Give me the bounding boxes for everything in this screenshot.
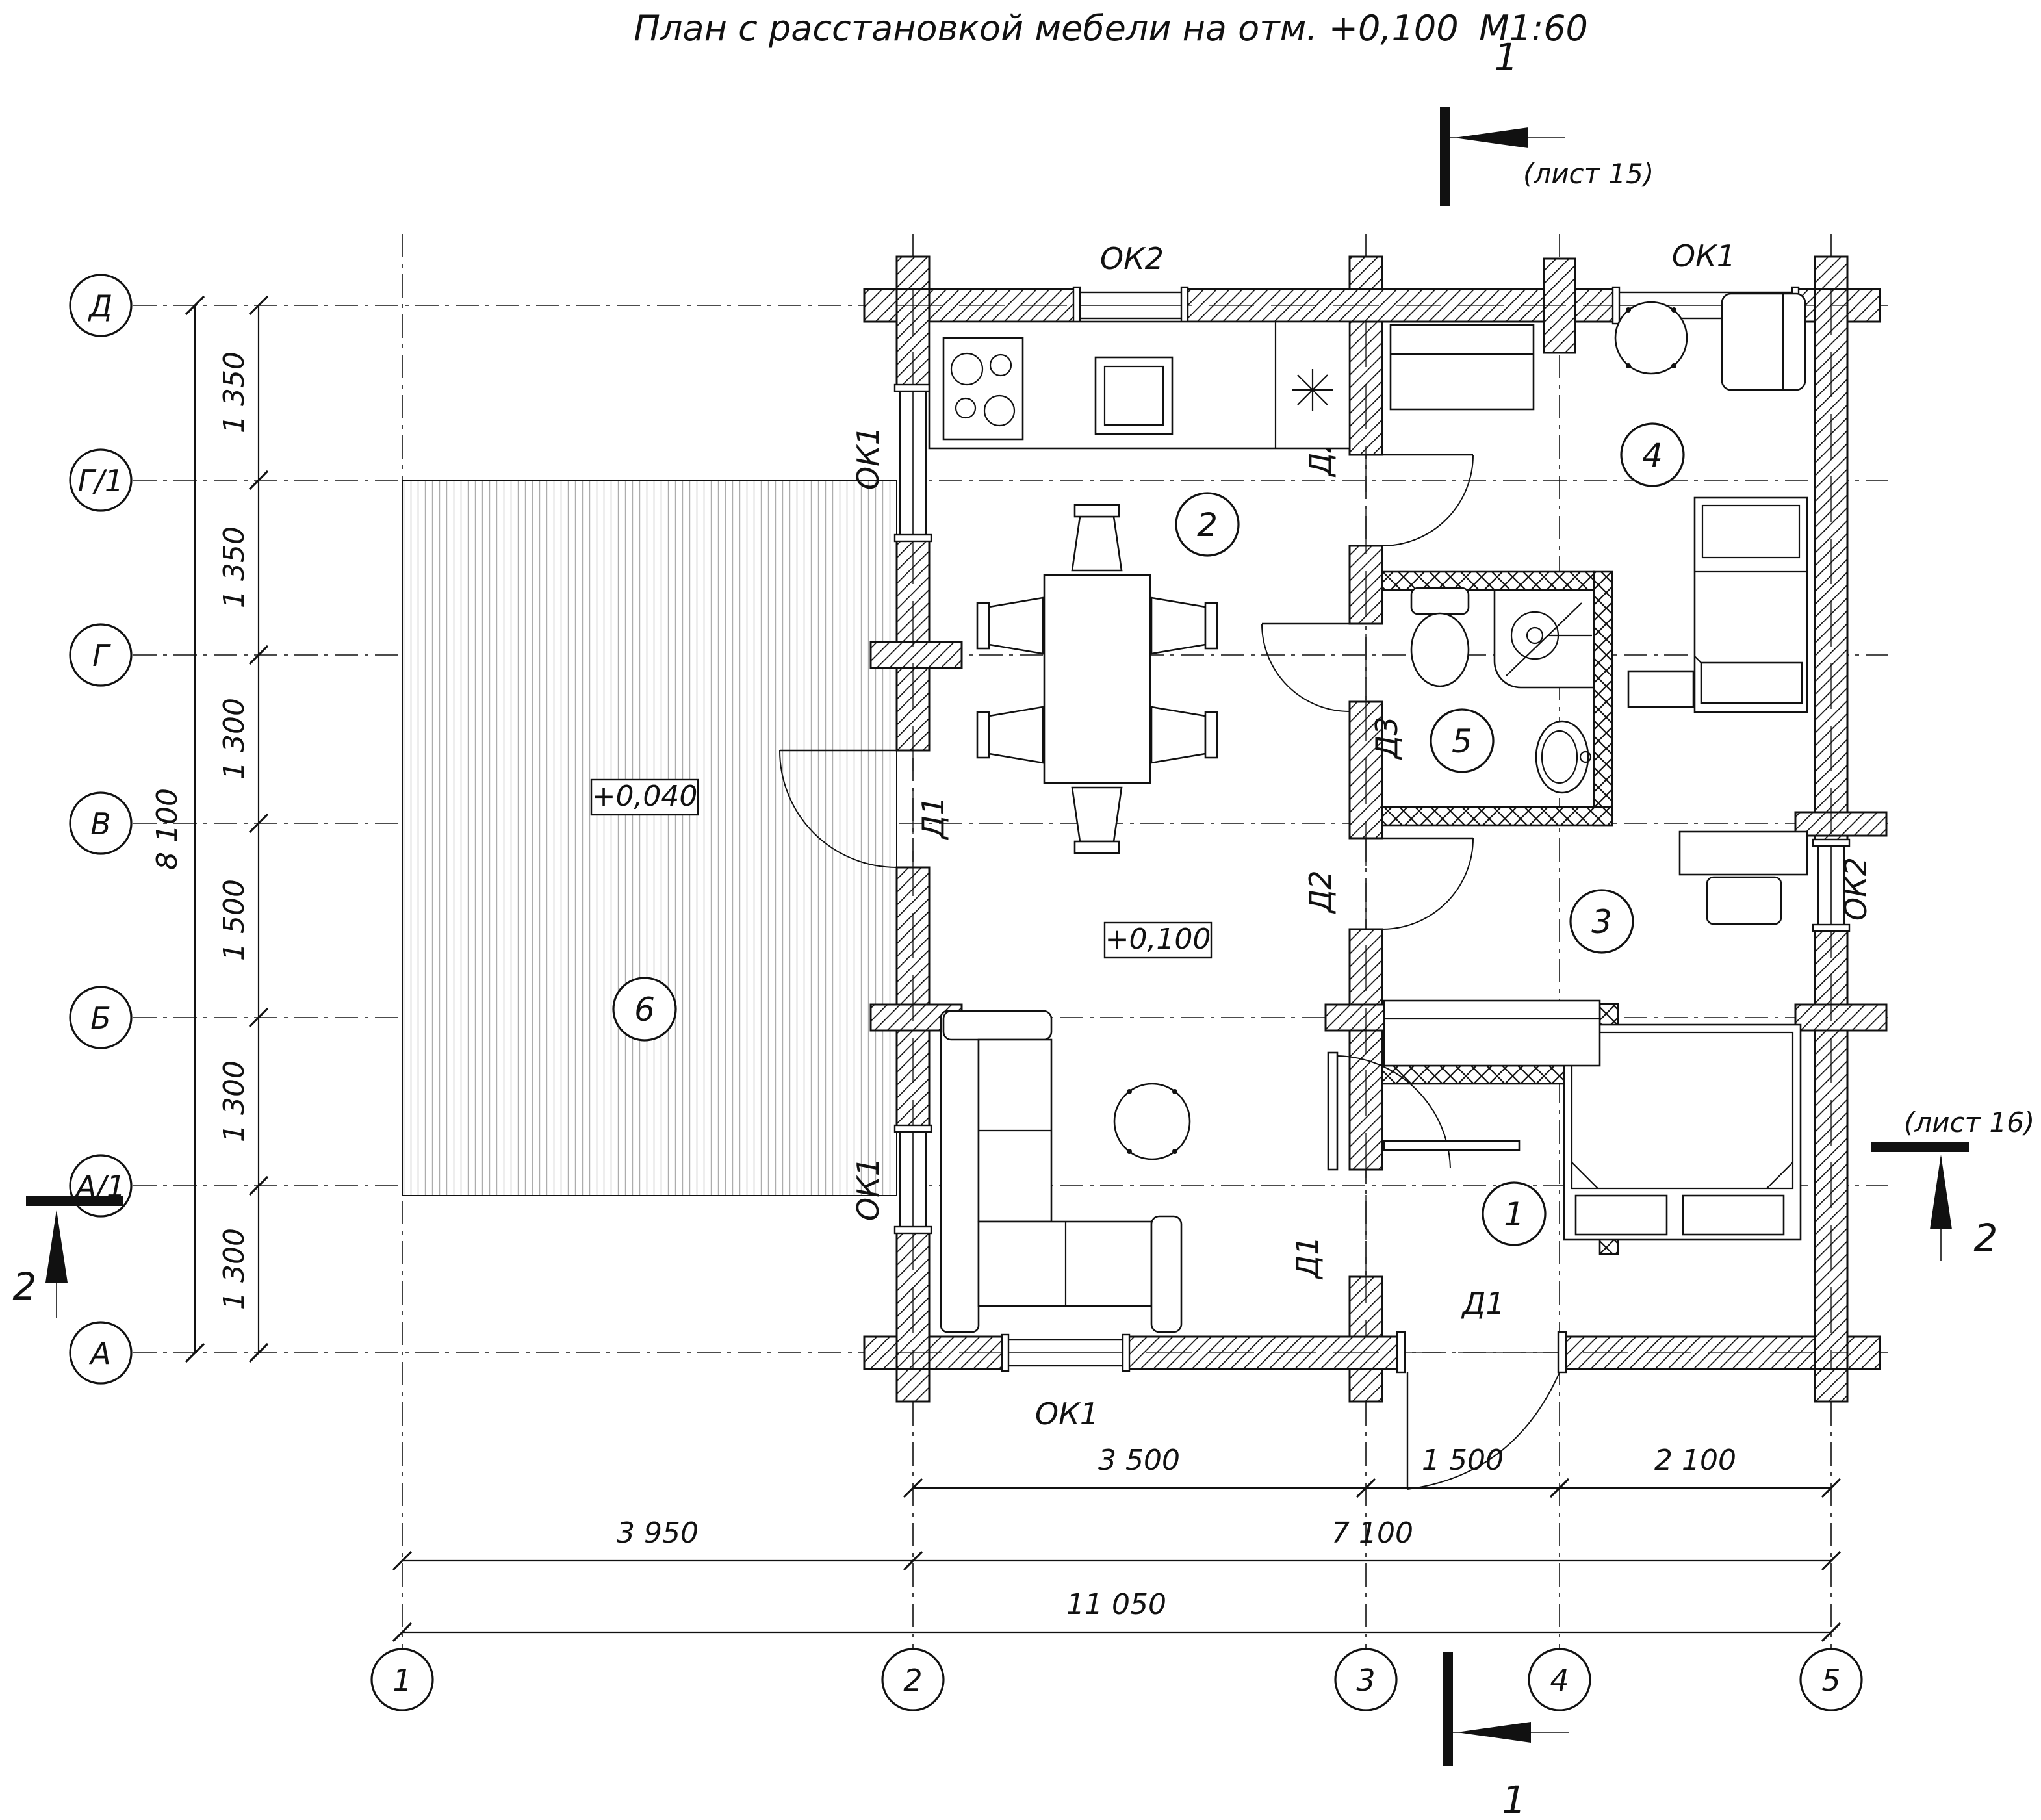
window-label: ОК2 <box>1100 241 1164 276</box>
dim-left-total: 8 100 <box>151 788 184 870</box>
title-block: План с расстановкой мебели на отм. +0,10… <box>634 8 1588 49</box>
side-table <box>1114 1084 1190 1159</box>
axis-bubbles-rows: Д Г/1 Г В Б А/1 А <box>70 275 131 1383</box>
dim-left-4: 1 300 <box>218 1060 251 1142</box>
section-marker-top: 1 (лист 15) <box>1440 35 1654 206</box>
terrace: +0,040 <box>402 480 897 1196</box>
section-number: 1 <box>1502 1778 1526 1820</box>
round-table <box>1615 302 1687 374</box>
room-number-6: 6 <box>634 991 655 1029</box>
dim-b2-0: 3 950 <box>617 1517 699 1550</box>
floor-plan-svg: План с расстановкой мебели на отм. +0,10… <box>0 0 2041 1820</box>
axis-row-label: А <box>88 1336 110 1371</box>
door-label: Д1 <box>916 796 951 840</box>
window-ok2-right: ОК2 <box>1813 840 1873 931</box>
hall-closet <box>1391 325 1534 409</box>
wardrobe <box>1384 1001 1600 1066</box>
door-label: Д1 <box>1290 1236 1325 1279</box>
sheet-ref: (лист 15) <box>1523 158 1654 190</box>
section-number: 2 <box>13 1264 37 1309</box>
axis-row-label: Г/1 <box>78 463 123 498</box>
sofa-armrest-top <box>943 1011 1051 1040</box>
axis-col-label: 5 <box>1821 1663 1840 1698</box>
room-number-1: 1 <box>1504 1196 1524 1233</box>
section-number: 2 <box>1974 1216 1998 1260</box>
window-label: ОК2 <box>1838 857 1873 921</box>
dim-b1-0: 3 500 <box>1098 1444 1180 1477</box>
dim-bottom-total: 11 050 <box>1066 1588 1166 1621</box>
axis-grid: Д Г/1 Г В Б А/1 А 1 2 3 4 5 <box>70 234 1888 1710</box>
section-marker-right: (лист 16) 2 <box>1871 1107 2035 1261</box>
dim-b1-2: 2 100 <box>1654 1444 1736 1477</box>
window-label: ОК1 <box>1672 238 1736 274</box>
dim-left-0: 1 350 <box>218 352 251 433</box>
dim-left-1: 1 350 <box>218 526 251 608</box>
door-d2-lower: Д2 <box>1303 838 1473 929</box>
pillow <box>1576 1196 1667 1235</box>
hall-shelf <box>1384 1141 1519 1150</box>
toilet-tank <box>1411 588 1469 614</box>
axis-col-label: 3 <box>1356 1663 1375 1698</box>
sheet-ref: (лист 16) <box>1904 1107 2035 1138</box>
door-label: Д3 <box>1369 716 1404 760</box>
kitchen-sink <box>1096 357 1172 434</box>
stove <box>943 338 1023 439</box>
dim-b1-1: 1 500 <box>1422 1444 1504 1477</box>
page-title: План с расстановкой мебели на отм. +0,10… <box>634 8 1458 49</box>
room-number-3: 3 <box>1591 903 1612 941</box>
sofa-back <box>941 1011 979 1332</box>
window-ok1-bottom: ОК1 <box>1002 1335 1129 1431</box>
pillow <box>1683 1196 1784 1235</box>
room-number-5: 5 <box>1452 723 1472 760</box>
floor-plan-page: План с расстановкой мебели на отм. +0,10… <box>0 0 2041 1820</box>
dining-table <box>1044 575 1150 783</box>
dim-left-5: 1 300 <box>218 1228 251 1310</box>
axis-bubbles-cols: 1 2 3 4 5 <box>372 1649 1862 1710</box>
dim-ticks-left <box>186 296 268 1362</box>
furniture-kitchen <box>929 322 1350 448</box>
toilet-bowl <box>1411 613 1469 686</box>
axis-col-label: 2 <box>903 1663 922 1698</box>
desk-chair <box>1707 877 1781 924</box>
axis-row-label: Б <box>90 1001 111 1036</box>
axis-col-label: 4 <box>1550 1663 1569 1698</box>
door-d3-bath: Д3 <box>1262 624 1404 760</box>
sofa-armrest-right <box>1151 1216 1181 1332</box>
dim-left-2: 1 300 <box>218 698 251 780</box>
window-label: ОК1 <box>1035 1396 1099 1431</box>
door-d2-upper: Д2 <box>1303 433 1473 546</box>
axis-row-label: В <box>90 806 111 841</box>
terrace-deck <box>402 480 897 1196</box>
window-ok2-top: ОК2 <box>1073 241 1188 324</box>
furniture-living <box>941 1011 1190 1332</box>
dim-b2-1: 7 100 <box>1331 1517 1413 1550</box>
dim-left-3: 1 500 <box>218 879 251 961</box>
section-number: 1 <box>1495 35 1519 79</box>
desk <box>1680 832 1807 875</box>
elevation-floor: +0,100 <box>1105 923 1211 956</box>
window-label: ОК1 <box>851 1157 886 1221</box>
fridge-snowflake-icon <box>1292 369 1333 411</box>
axis-col-label: 1 <box>392 1663 411 1698</box>
furniture-dining <box>977 505 1217 853</box>
room-number-4: 4 <box>1642 437 1663 474</box>
bed-foot-blanket <box>1701 663 1802 703</box>
axis-row-label: Г <box>92 638 111 673</box>
armchair <box>1722 294 1805 390</box>
room-number-2: 2 <box>1197 506 1218 544</box>
elevation-terrace: +0,040 <box>592 780 698 813</box>
nightstand <box>1628 671 1693 707</box>
window-label: ОК1 <box>851 426 886 490</box>
door-label: Д2 <box>1303 870 1338 914</box>
elevation-floor-group: +0,100 <box>1105 923 1211 958</box>
axis-row-label: Д <box>88 288 112 324</box>
door-label: Д1 <box>1461 1286 1504 1321</box>
